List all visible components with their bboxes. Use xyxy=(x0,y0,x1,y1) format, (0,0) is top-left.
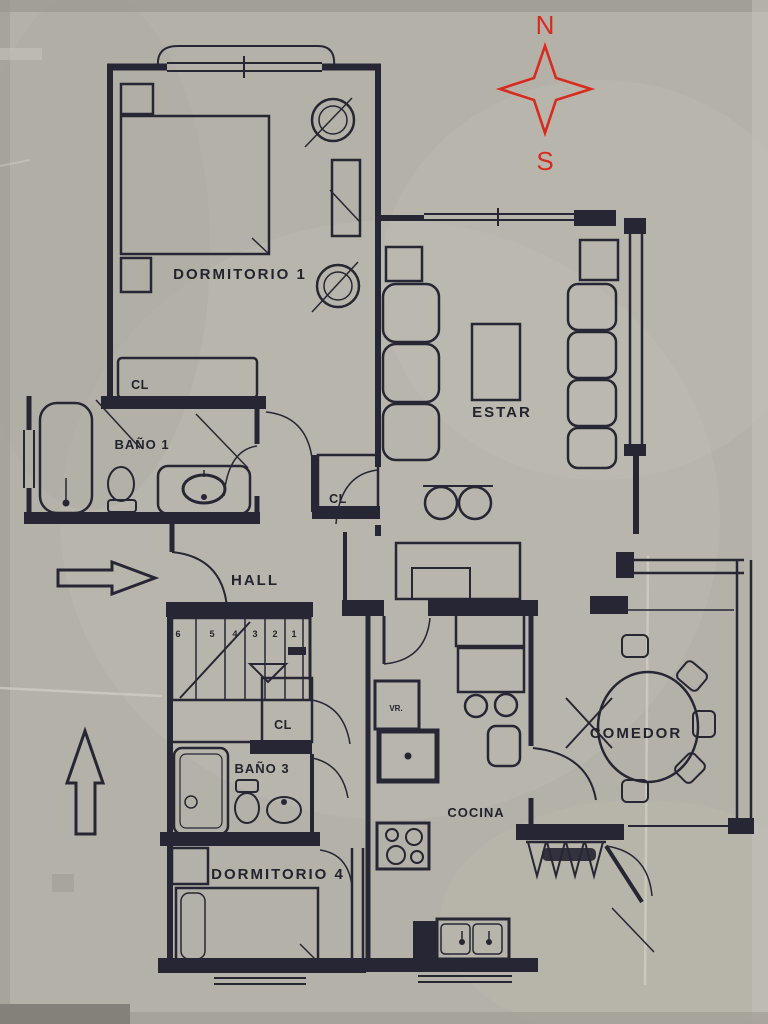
room-label-dormitorio4: DORMITORIO 4 xyxy=(211,866,345,883)
floor-plan-canvas: 6 5 4 3 2 1 DORMITORIO 1 ESTAR BAÑO 1 CL… xyxy=(0,0,768,1024)
closet-label-dormitorio1: CL xyxy=(131,378,149,392)
stair-step-number: 5 xyxy=(209,629,214,639)
stair-step-number: 6 xyxy=(175,629,180,639)
room-label-cocina: COCINA xyxy=(447,805,504,820)
stair-step-number: 4 xyxy=(232,629,237,639)
room-label-bano3: BAÑO 3 xyxy=(234,761,289,776)
compass-north-label: N xyxy=(536,10,555,40)
appliance-label: VR. xyxy=(389,704,402,713)
closet-label-corridor: CL xyxy=(274,718,292,732)
room-label-estar: ESTAR xyxy=(472,404,532,421)
floor-plan-scan: 6 5 4 3 2 1 DORMITORIO 1 ESTAR BAÑO 1 CL… xyxy=(0,0,768,1024)
room-label-comedor: COMEDOR xyxy=(590,725,682,742)
compass-south-label: S xyxy=(536,146,553,176)
room-label-hall: HALL xyxy=(231,572,279,589)
room-label-bano1: BAÑO 1 xyxy=(114,437,169,452)
room-label-dormitorio1: DORMITORIO 1 xyxy=(173,266,307,283)
stair-step-number: 1 xyxy=(291,629,296,639)
stair-step-number: 2 xyxy=(272,629,277,639)
ink-smudge xyxy=(542,848,596,861)
stair-step-number: 3 xyxy=(252,629,257,639)
closet-label-hall: CL xyxy=(329,492,347,506)
